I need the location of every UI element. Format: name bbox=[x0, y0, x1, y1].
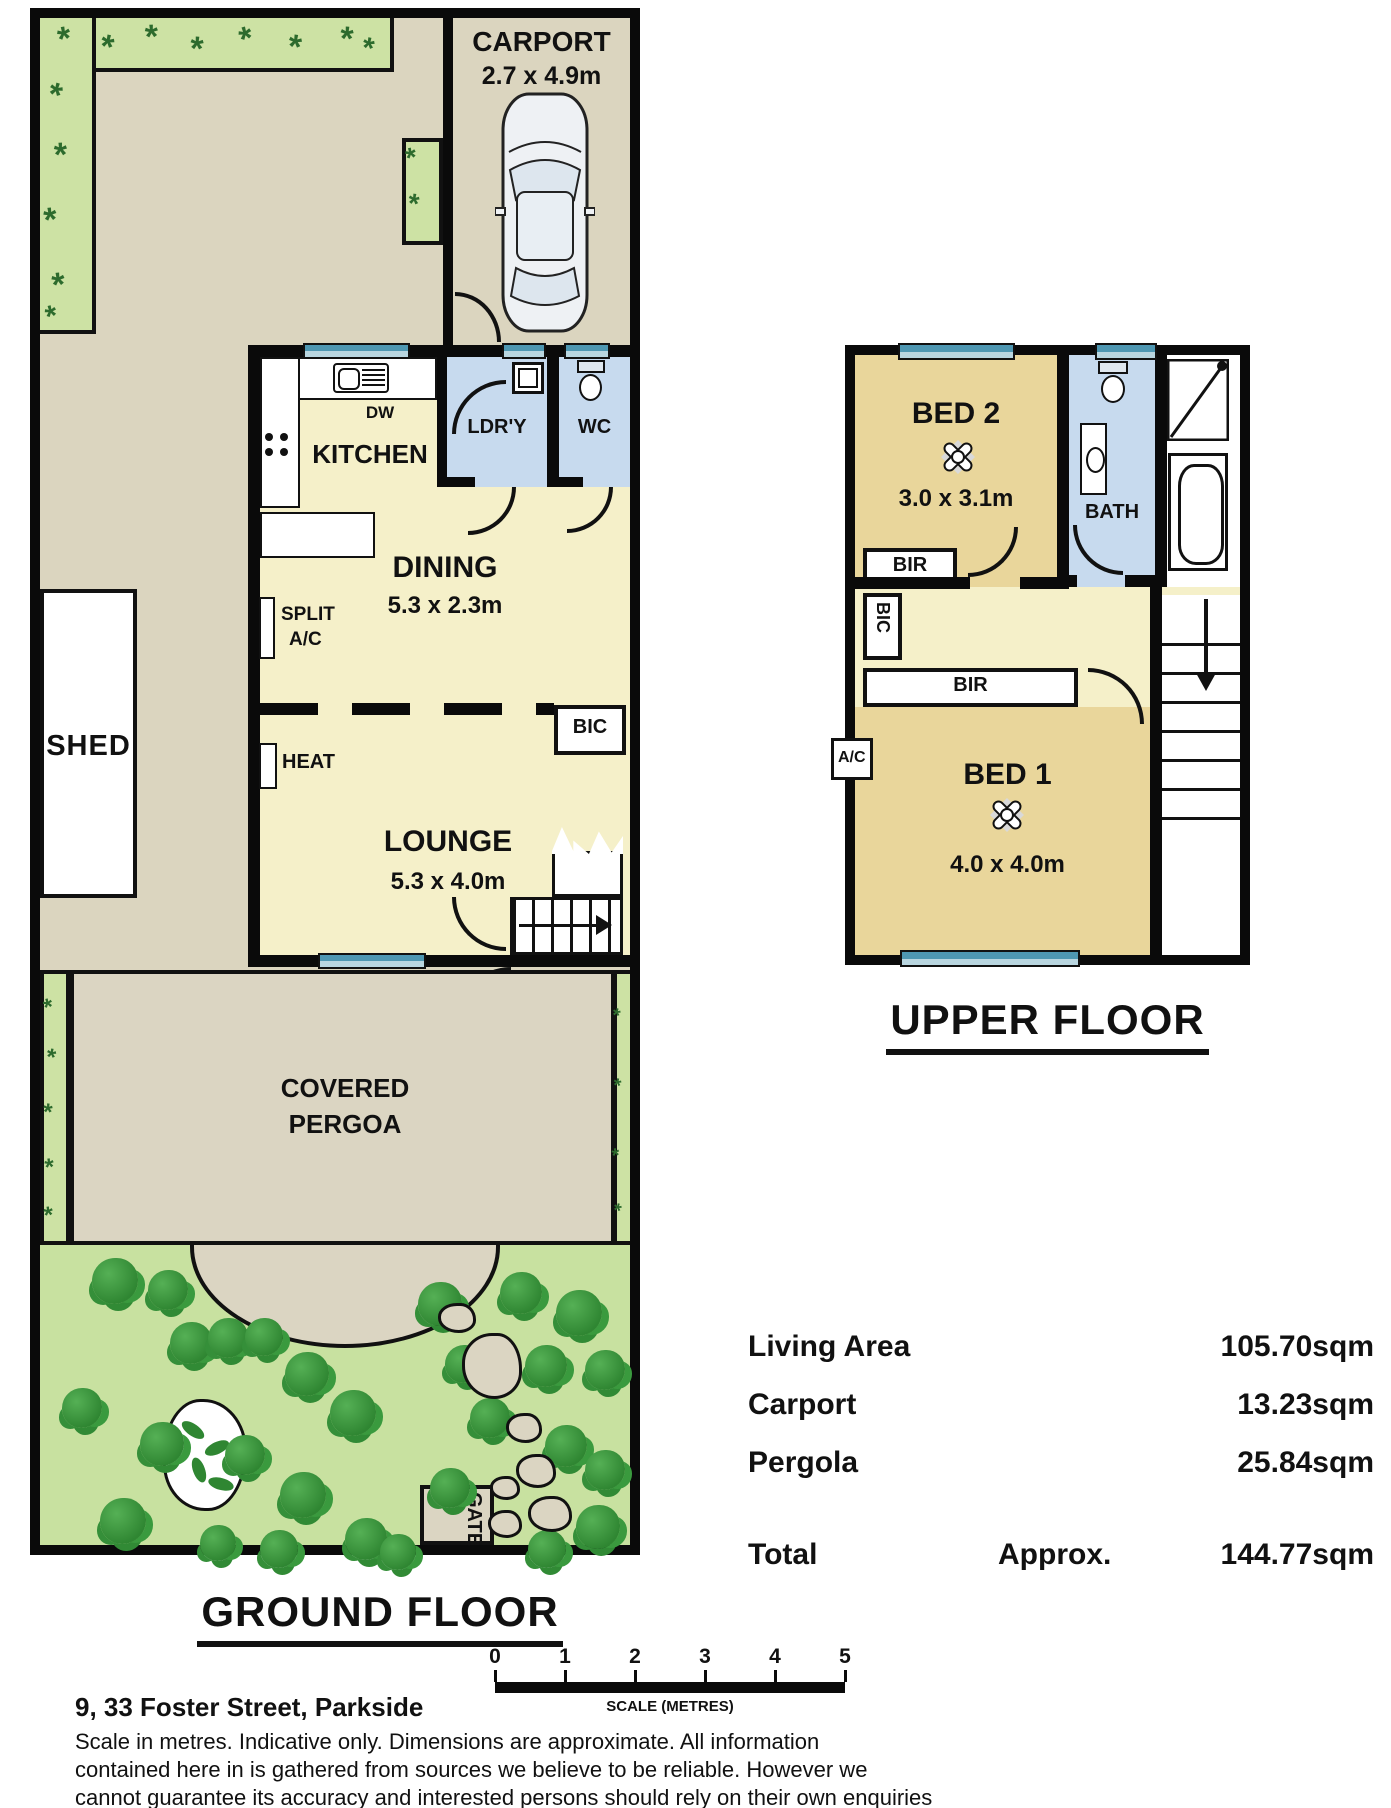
bed2-window-icon bbox=[898, 343, 1015, 360]
bush-icon bbox=[380, 1534, 416, 1570]
wc-bottom-wall bbox=[559, 477, 583, 487]
bush-icon bbox=[528, 1530, 566, 1568]
scale-caption: SCALE (METRES) bbox=[495, 1698, 845, 1715]
bath-fixture-wall bbox=[1155, 355, 1167, 587]
vanity-icon bbox=[1080, 423, 1107, 495]
area-row: Pergola25.84sqm bbox=[748, 1446, 1374, 1504]
bed2-dims: 3.0 x 3.1m bbox=[855, 485, 1057, 513]
area-label: Carport bbox=[748, 1388, 856, 1422]
ac-upper-label: A/C bbox=[838, 749, 866, 767]
bush-icon bbox=[260, 1530, 298, 1568]
garden-bed-left bbox=[40, 18, 96, 334]
plant-icon: * bbox=[189, 32, 205, 67]
bic-label: BIC bbox=[554, 716, 626, 739]
stepping-stone-icon bbox=[438, 1303, 476, 1333]
ceiling-fan-icon bbox=[938, 437, 978, 477]
pergola bbox=[70, 970, 615, 1245]
pergola-label-1: COVERED bbox=[200, 1073, 490, 1104]
split-ac-unit bbox=[259, 597, 275, 659]
plant-icon: * bbox=[53, 138, 67, 172]
scale-bar: 012345 SCALE (METRES) bbox=[495, 1645, 847, 1715]
lounge-label: LOUNGE bbox=[348, 825, 548, 859]
laundry-tub-icon bbox=[512, 362, 544, 394]
scale-tick-label: 5 bbox=[835, 1645, 855, 1669]
upper-floor-title: UPPER FLOOR bbox=[845, 996, 1250, 1055]
bed1-label: BED 1 bbox=[880, 758, 1135, 792]
bathtub-icon bbox=[1168, 453, 1228, 571]
dining-lounge-divider bbox=[260, 703, 554, 715]
area-table: Living Area105.70sqmCarport13.23sqmPergo… bbox=[748, 1330, 1374, 1578]
ceiling-fan-icon-bed1 bbox=[987, 795, 1027, 835]
wc-window-icon bbox=[564, 343, 610, 359]
scale-tick-mark bbox=[564, 1670, 567, 1682]
ground-floor-title: GROUND FLOOR bbox=[130, 1588, 630, 1647]
area-label: Living Area bbox=[748, 1330, 910, 1364]
scale-tick-mark bbox=[704, 1670, 707, 1682]
bed2-bottom-wall-b bbox=[1020, 577, 1057, 589]
plant-icon: * bbox=[42, 1101, 53, 1126]
scale-bar-line bbox=[495, 1682, 845, 1693]
kitchen-label: KITCHEN bbox=[285, 439, 455, 470]
stairs-landing bbox=[552, 851, 623, 897]
stair-wall-upper bbox=[1150, 587, 1162, 955]
area-value: 105.70sqm bbox=[1221, 1330, 1374, 1364]
disclaimer: Scale in metres. Indicative only. Dimens… bbox=[75, 1728, 932, 1808]
bed2-label: BED 2 bbox=[855, 397, 1057, 431]
scale-tick-mark bbox=[844, 1670, 847, 1682]
total-label: Total bbox=[748, 1538, 817, 1572]
shed-label: SHED bbox=[40, 730, 137, 763]
shower-icon bbox=[1167, 359, 1229, 441]
dishwasher-label: DW bbox=[355, 403, 405, 423]
stairs-up-arrow-icon bbox=[596, 915, 612, 935]
split-ac-label-2: A/C bbox=[289, 629, 322, 651]
disclaimer-line-2: contained here in is gathered from sourc… bbox=[75, 1756, 932, 1784]
disclaimer-line-1: Scale in metres. Indicative only. Dimens… bbox=[75, 1728, 932, 1756]
bir-bed1-label: BIR bbox=[863, 674, 1078, 697]
stepping-stone-icon bbox=[488, 1510, 522, 1538]
stepping-stone-icon bbox=[490, 1476, 520, 1500]
area-value: 25.84sqm bbox=[1237, 1446, 1374, 1480]
lounge-window-icon bbox=[318, 953, 426, 969]
sink-unit-icon bbox=[333, 363, 389, 393]
laundry-window-icon bbox=[502, 343, 546, 359]
kitchen-window-icon bbox=[303, 343, 410, 359]
area-total-row: Total Approx. 144.77sqm bbox=[748, 1538, 1374, 1578]
toilet-icon-upper bbox=[1098, 361, 1128, 407]
scale-tick-label: 0 bbox=[485, 1645, 505, 1669]
stepping-stone-icon bbox=[528, 1496, 572, 1532]
bed2-bath-wall bbox=[1057, 355, 1069, 589]
area-row: Living Area105.70sqm bbox=[748, 1330, 1374, 1388]
laundry-bottom-wall bbox=[447, 477, 475, 487]
scale-tick-label: 1 bbox=[555, 1645, 575, 1669]
bed1-door-icon bbox=[1088, 668, 1144, 724]
disclaimer-line-3: cannot guarantee its accuracy and intere… bbox=[75, 1784, 932, 1808]
carport-wall bbox=[443, 18, 453, 345]
bic-upper-label: BIC bbox=[872, 602, 893, 633]
wc-label: WC bbox=[559, 416, 630, 439]
scale-tick-mark bbox=[774, 1670, 777, 1682]
house-bottom-wall bbox=[248, 955, 630, 967]
heat-label: HEAT bbox=[282, 751, 335, 774]
stepping-stone-icon bbox=[462, 1333, 522, 1399]
plant-icon: * bbox=[144, 20, 159, 55]
bath-bottom-wall-a bbox=[1057, 575, 1077, 587]
area-value: 13.23sqm bbox=[1237, 1388, 1374, 1422]
stepping-stone-icon bbox=[516, 1454, 556, 1488]
bush-icon bbox=[200, 1525, 236, 1561]
car-icon bbox=[495, 90, 595, 335]
carport-label: CARPORT bbox=[453, 26, 630, 58]
scale-tick-label: 4 bbox=[765, 1645, 785, 1669]
scale-tick-label: 3 bbox=[695, 1645, 715, 1669]
scale-tick-mark bbox=[494, 1670, 497, 1682]
carport-dims: 2.7 x 4.9m bbox=[453, 62, 630, 91]
pergola-label-2: PERGOA bbox=[200, 1109, 490, 1140]
bath-window-icon bbox=[1095, 343, 1157, 360]
toilet-icon bbox=[577, 360, 605, 404]
total-qualifier: Approx. bbox=[998, 1538, 1111, 1572]
dining-dims: 5.3 x 2.3m bbox=[345, 592, 545, 620]
floorplan-page: CARPORT 2.7 x 4.9m LDR'Y WC bbox=[0, 0, 1391, 1808]
ground-floor-plan: CARPORT 2.7 x 4.9m LDR'Y WC bbox=[30, 8, 640, 1555]
dining-label: DINING bbox=[345, 551, 545, 585]
bed1-dims: 4.0 x 4.0m bbox=[880, 851, 1135, 879]
stairs-down-arrow-icon bbox=[1196, 599, 1216, 695]
lounge-dims: 5.3 x 4.0m bbox=[348, 868, 548, 896]
scale-tick-mark bbox=[634, 1670, 637, 1682]
area-row: Carport13.23sqm bbox=[748, 1388, 1374, 1446]
split-ac-label-1: SPLIT bbox=[281, 604, 335, 626]
address: 9, 33 Foster Street, Parkside bbox=[75, 1692, 423, 1723]
bir-bed2-label: BIR bbox=[863, 554, 957, 577]
bed1-window-icon bbox=[900, 950, 1080, 967]
area-label: Pergola bbox=[748, 1446, 858, 1480]
bath-label: BATH bbox=[1069, 501, 1155, 524]
stepping-stone-icon bbox=[506, 1413, 542, 1443]
heater-unit bbox=[259, 743, 277, 789]
total-value: 144.77sqm bbox=[1221, 1538, 1374, 1572]
upper-floor-plan: BED 2 3.0 x 3.1m BIR BATH bbox=[845, 345, 1250, 965]
laundry-wc-wall bbox=[547, 357, 559, 487]
bed2-bottom-wall-a bbox=[855, 577, 970, 589]
stairs-ground bbox=[510, 897, 623, 955]
plant-icon: * bbox=[339, 22, 355, 57]
scale-tick-label: 2 bbox=[625, 1645, 645, 1669]
